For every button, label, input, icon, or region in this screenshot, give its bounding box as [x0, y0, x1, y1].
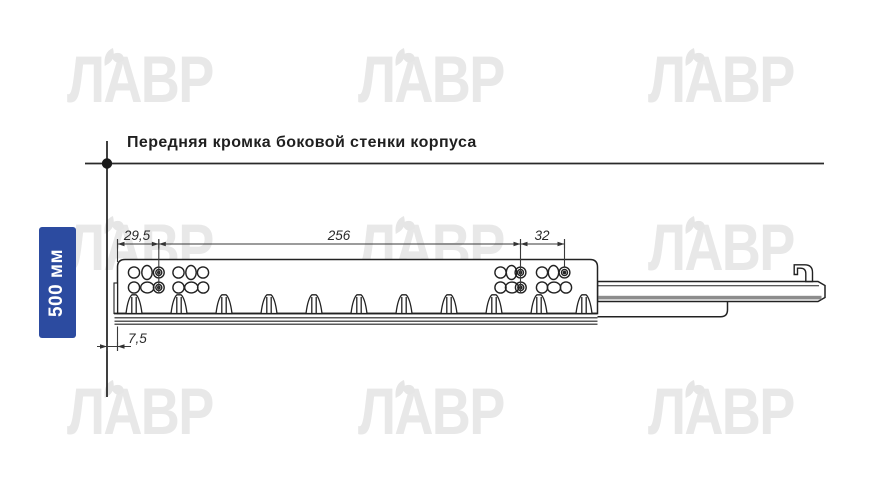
dimension-front-offset: 29,5 [123, 228, 151, 243]
page-title: Передняя кромка боковой стенки корпуса [127, 134, 477, 151]
dimension-mounting-span: 256 [327, 228, 351, 243]
diagram-page: ЛАВР ЛАВР ЛАВР ЛАВР ЛАВР ЛАВР ЛАВР ЛАВР … [0, 0, 870, 489]
length-badge: 500 мм [39, 227, 76, 338]
rear-hook [794, 265, 812, 282]
drawer-member-rail [598, 265, 826, 302]
length-badge-label: 500 мм [47, 248, 69, 316]
dimension-rear-pitch: 32 [534, 228, 550, 243]
drawer-member-lower-tab [598, 302, 728, 317]
reference-dot [102, 158, 112, 168]
front-flange [114, 283, 118, 314]
rail-gray-band [598, 296, 822, 300]
drawer-slide-drawing: Передняя кромка боковой стенки корпуса [0, 0, 870, 489]
dimension-bottom-offset: 7,5 [128, 331, 147, 346]
cabinet-member-body [114, 260, 598, 325]
bottom-strip [114, 314, 598, 325]
